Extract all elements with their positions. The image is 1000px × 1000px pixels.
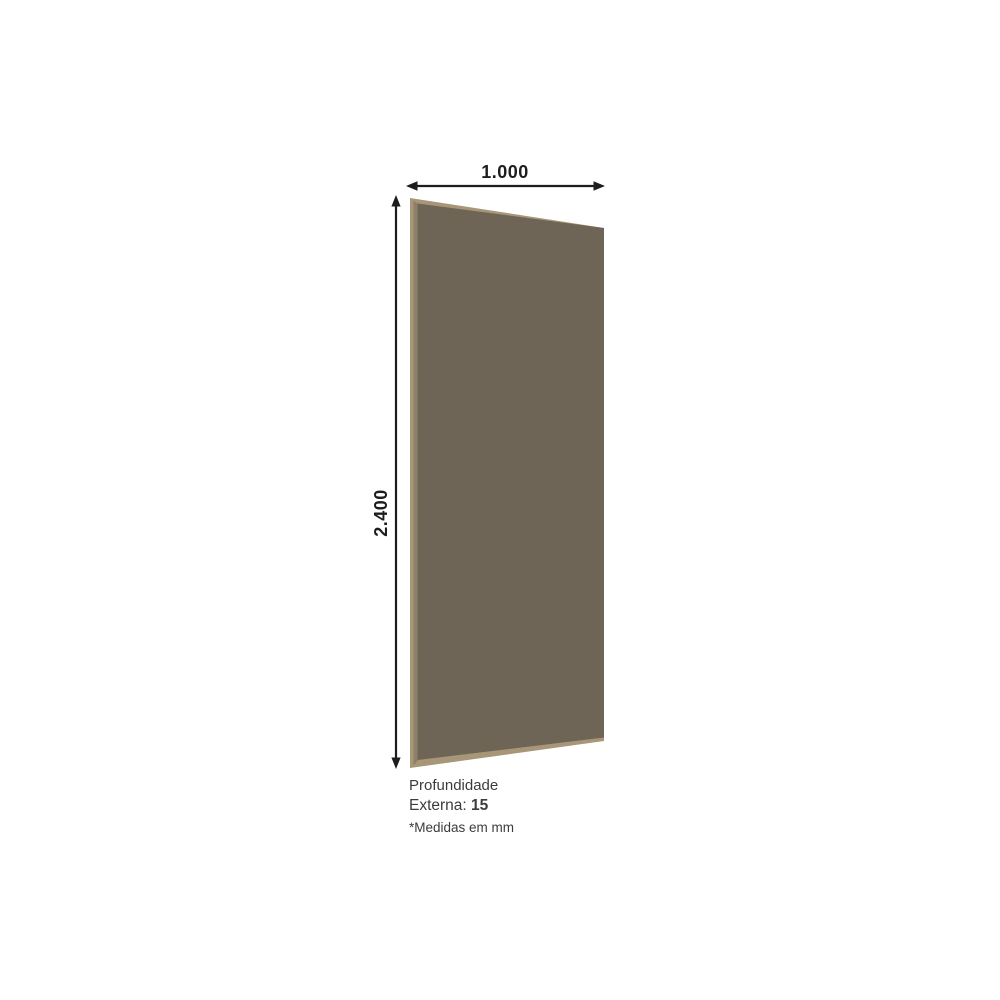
width-arrowhead-right-icon [594,181,606,191]
height-arrowhead-bottom-icon [391,758,400,770]
caption-depth-value-line: Externa: 15 [409,796,514,816]
panel-face [418,204,605,761]
width-arrowhead-left-icon [406,181,418,191]
caption-units-footnote: *Medidas em mm [409,819,514,837]
product-dimension-diagram: 1.000 2.400 Profundidade Externa: 15 *Me… [0,0,1000,1000]
caption-depth-title: Profundidade [409,776,514,796]
panel-left-edge-shade [414,201,418,766]
width-dimension-label: 1.000 [481,162,529,182]
caption-depth-value: 15 [471,797,488,814]
caption-block: Profundidade Externa: 15 *Medidas em mm [409,776,514,837]
panel-diagram-svg: 1.000 2.400 [0,0,1000,1000]
height-dimension-label: 2.400 [371,489,391,537]
caption-depth-label: Externa: [409,797,467,814]
height-arrowhead-top-icon [391,195,400,207]
